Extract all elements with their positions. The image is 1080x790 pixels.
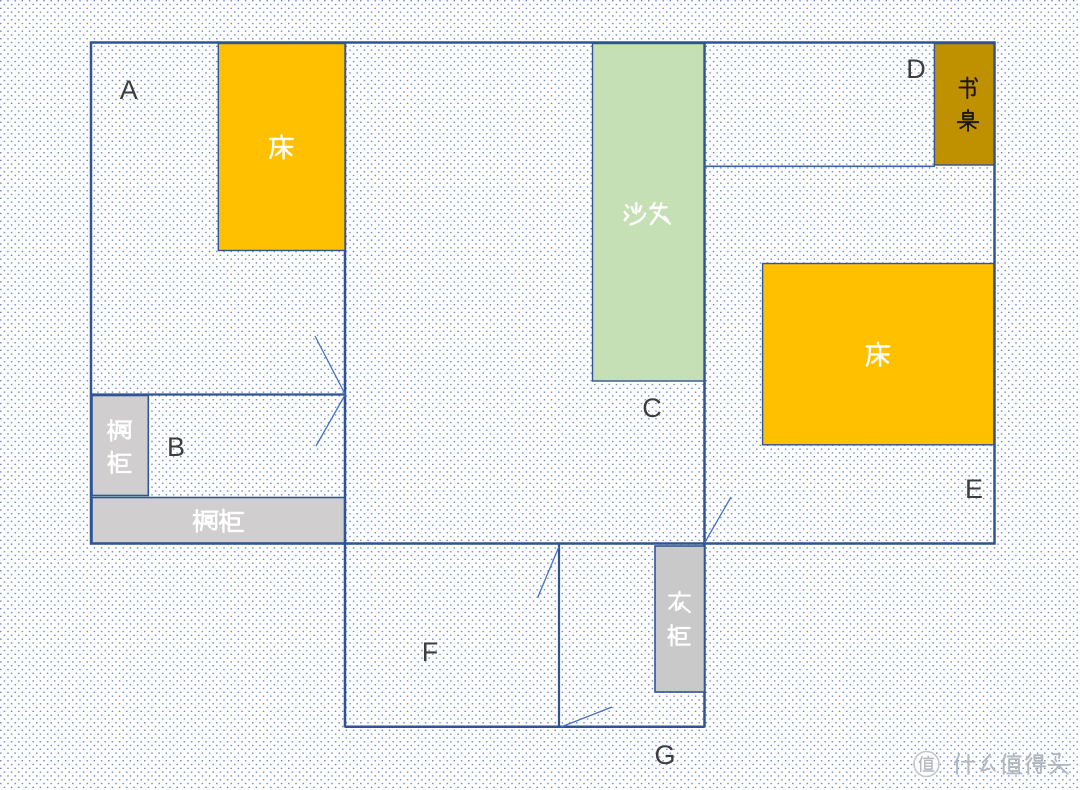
svg-text:G: G: [654, 740, 675, 770]
svg-text:D: D: [906, 54, 926, 84]
svg-text:A: A: [120, 75, 138, 105]
svg-text:C: C: [642, 393, 662, 423]
svg-text:F: F: [422, 637, 439, 667]
svg-text:B: B: [167, 432, 185, 462]
svg-text:E: E: [965, 474, 983, 504]
